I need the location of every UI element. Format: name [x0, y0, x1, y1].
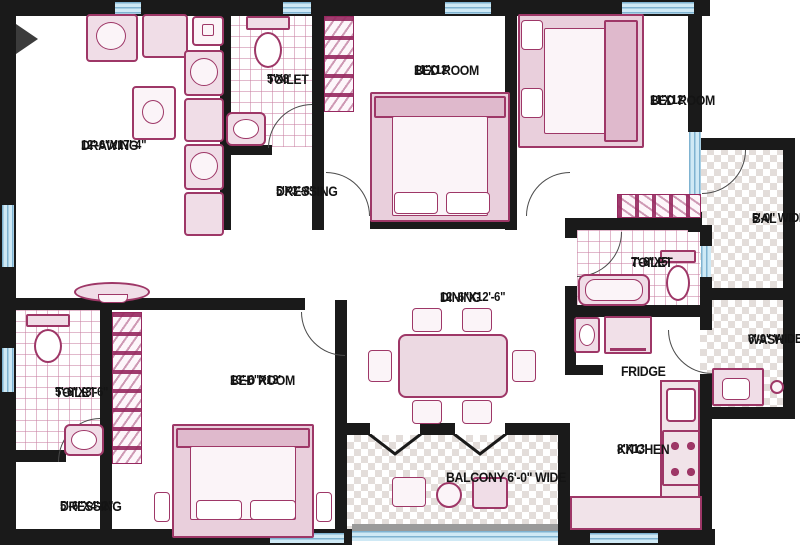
dining-chair [412, 400, 442, 424]
wall [702, 407, 795, 419]
window [445, 2, 491, 14]
sliding-door-mark [368, 434, 422, 456]
room-dims: 11'X12' [414, 62, 449, 78]
wall [565, 365, 603, 375]
wall [0, 450, 66, 462]
nightstand [521, 20, 543, 50]
room-name: FRIDGE [621, 363, 665, 380]
counter-sink-bowl [579, 324, 595, 346]
wall [700, 288, 795, 300]
wall [570, 218, 702, 230]
armchair-cushion [190, 152, 218, 180]
nightstand [316, 492, 332, 522]
dining-chair [368, 350, 392, 382]
wash-basin-bowl [233, 119, 259, 139]
room-dims: 6'-9" WIDE [748, 331, 800, 347]
dining-chair [512, 350, 536, 382]
pillow [196, 500, 242, 520]
sofa-seat [142, 14, 188, 58]
door-arc [668, 330, 712, 374]
room-dims: 5'-6"X4'-2" [60, 498, 113, 514]
washing-machine-door [722, 378, 750, 400]
room-dims: 5'X8' [267, 71, 291, 87]
room-dims: 12'-6"X17'-4" [81, 137, 146, 153]
dining-table [398, 334, 508, 398]
toilet-bowl [254, 32, 282, 68]
entry-arrow-icon [16, 24, 38, 54]
sliding-door-mark [453, 434, 507, 456]
room-dims: 11'X12' [650, 92, 685, 108]
bed-headboard [374, 96, 506, 118]
wall [783, 138, 795, 419]
window [2, 348, 14, 392]
wall [0, 0, 16, 545]
balcony-railing [352, 524, 558, 531]
wall [345, 423, 370, 435]
window [352, 531, 558, 541]
door-arc [526, 172, 570, 216]
pillow [394, 192, 438, 214]
kitchen-counter [570, 496, 702, 530]
wardrobe [617, 194, 701, 218]
dining-chair [462, 400, 492, 424]
wall [700, 138, 795, 150]
bed-mattress [544, 28, 608, 134]
balcony-chair [392, 477, 426, 507]
sofa-seat [184, 98, 224, 142]
room-dims: 8'X13' [617, 441, 647, 457]
window [701, 246, 711, 277]
room-dims: 7'-6"X5' [631, 254, 670, 270]
wall [420, 423, 455, 435]
wall [565, 218, 577, 238]
floor-plan: DRAWING 12'-6"X17'-4" TOILET 5'X8' DRESS… [0, 0, 800, 545]
side-table-inner [202, 24, 214, 36]
dining-chair [412, 308, 442, 332]
armchair-cushion [190, 58, 218, 86]
wall [218, 145, 272, 155]
dining-chair [462, 308, 492, 332]
bed-headboard [604, 20, 638, 142]
room-dims: 5'-0" WIDE [752, 210, 800, 226]
armchair-cushion [96, 22, 126, 50]
window [622, 2, 694, 14]
window [115, 2, 141, 14]
nightstand [521, 88, 543, 118]
room-dims: 13'-6"X13' [230, 372, 281, 388]
wall [688, 0, 702, 132]
wardrobe [112, 312, 142, 464]
wall [505, 423, 565, 435]
sofa-seat [184, 192, 224, 236]
room-dims: 5'-6"X8'-6" [55, 384, 108, 400]
bathtub-inner [585, 279, 643, 301]
wardrobe [324, 16, 354, 112]
room-name: BALCONY 6'-0" WIDE [446, 469, 566, 486]
window [2, 205, 14, 267]
wash-basin-bowl [71, 430, 97, 450]
nightstand [154, 492, 170, 522]
room-dims: 12'-6"X12'-6" [440, 289, 505, 305]
door-arc [301, 312, 345, 356]
wall [700, 277, 712, 300]
bed-headboard [176, 428, 310, 448]
coffee-table-decor [142, 100, 164, 124]
toilet-tank [26, 314, 70, 327]
kitchen-sink [666, 388, 696, 422]
window [283, 2, 311, 14]
fridge-handle [610, 348, 646, 351]
window [590, 533, 658, 543]
pillow [250, 500, 296, 520]
wash-knob [770, 380, 784, 394]
room-dims: 5'X3'-8" [276, 183, 315, 199]
pillow [446, 192, 490, 214]
toilet-bowl [34, 329, 62, 363]
wash-basin-base [98, 294, 128, 303]
toilet-tank [246, 16, 290, 30]
